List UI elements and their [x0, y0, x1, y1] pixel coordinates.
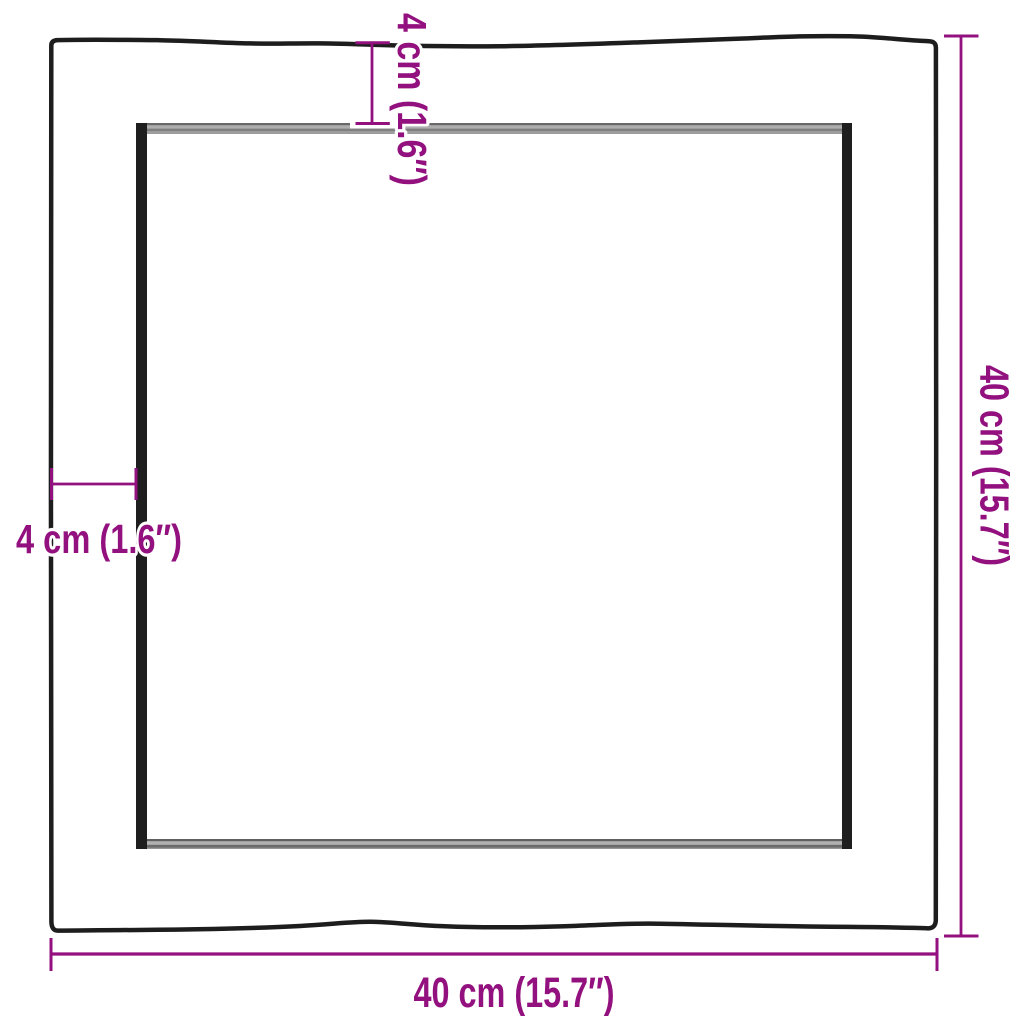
svg-text:4 cm (1.6″): 4 cm (1.6″) — [389, 13, 435, 186]
svg-text:40 cm (15.7″): 40 cm (15.7″) — [414, 969, 615, 1017]
svg-text:4 cm (1.6″): 4 cm (1.6″) — [16, 516, 182, 562]
svg-text:40 cm (15.7″): 40 cm (15.7″) — [972, 365, 1018, 566]
